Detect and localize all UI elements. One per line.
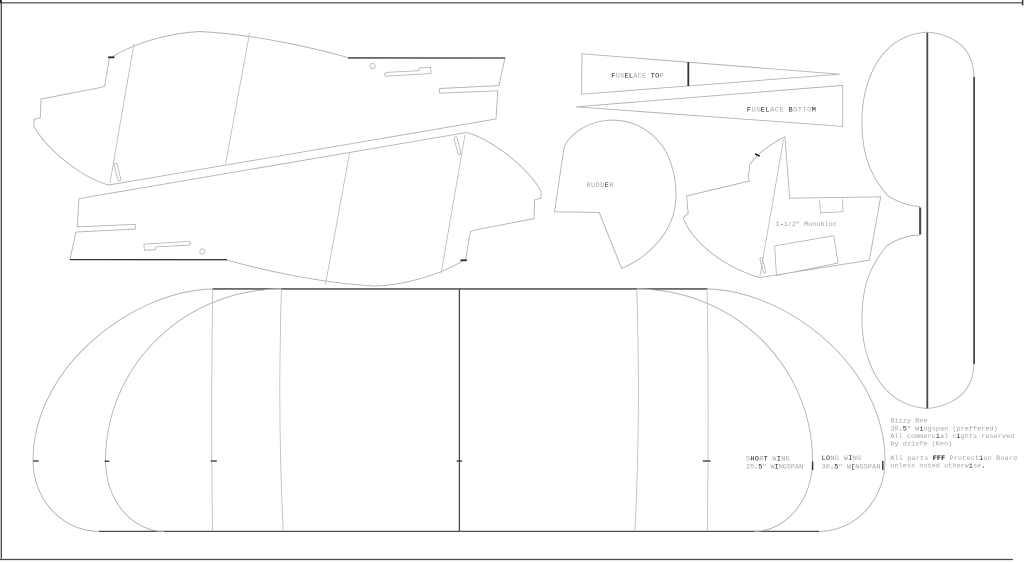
svg-text:by dz1sfe (Ken): by dz1sfe (Ken) xyxy=(890,441,952,449)
svg-text:RUDDER: RUDDER xyxy=(586,182,614,190)
svg-text:25.5" WINGSPAN: 25.5" WINGSPAN xyxy=(746,463,803,471)
svg-text:Bizzy Bee: Bizzy Bee xyxy=(890,418,927,426)
svg-text:30.5" W[NGSPAN: 30.5" W[NGSPAN xyxy=(822,463,881,471)
svg-text:SHORT WING: SHORT WING xyxy=(746,455,790,463)
svg-text:FUSELACE TOP: FUSELACE TOP xyxy=(611,72,664,80)
svg-text:FUSELACE BOTTOM: FUSELACE BOTTOM xyxy=(747,107,816,115)
svg-text:LONG WING: LONG WING xyxy=(822,455,862,463)
svg-text:unless noted otherwise.: unless noted otherwise. xyxy=(890,463,985,471)
svg-text:All parts FFF Protection Board: All parts FFF Protection Board xyxy=(890,455,1017,463)
svg-text:1-1/2" Monobloc: 1-1/2" Monobloc xyxy=(776,221,837,229)
